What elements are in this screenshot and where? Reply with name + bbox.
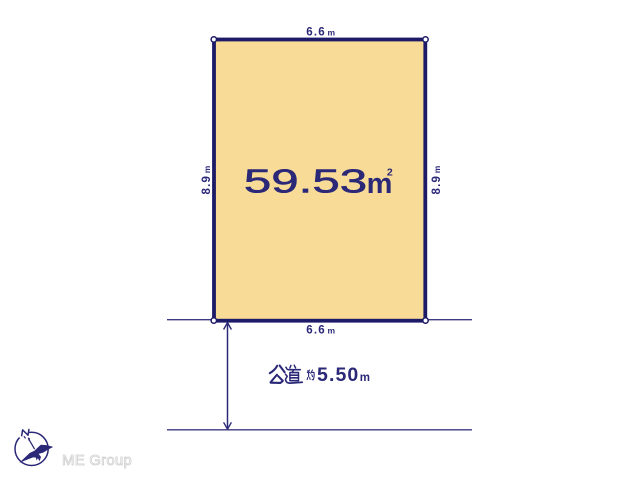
- svg-text:8.9m: 8.9m: [431, 165, 443, 195]
- svg-text:2: 2: [387, 167, 393, 179]
- svg-text:6.6m: 6.6m: [306, 27, 336, 39]
- svg-text:5.50: 5.50: [317, 364, 359, 386]
- svg-text:6.6m: 6.6m: [306, 325, 336, 337]
- svg-text:59.53: 59.53: [244, 162, 367, 199]
- svg-text:ME Group: ME Group: [62, 452, 132, 469]
- svg-text:8.9m: 8.9m: [201, 165, 213, 195]
- svg-text:m: m: [360, 372, 370, 384]
